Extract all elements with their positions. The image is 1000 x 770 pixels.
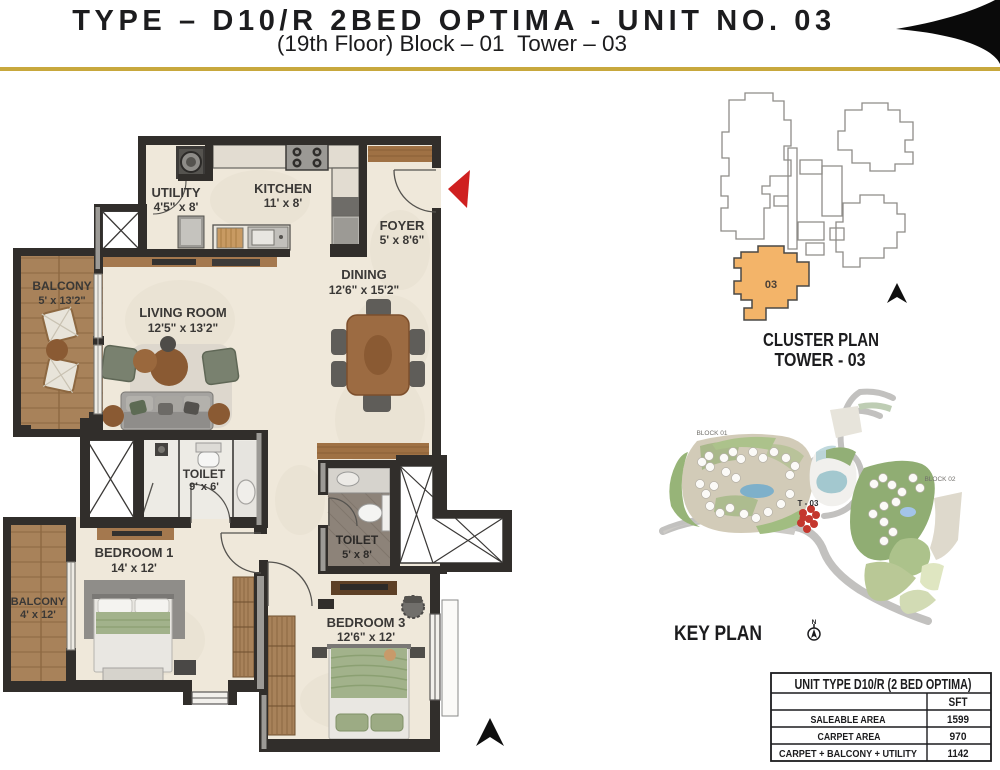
- svg-text:SALEABLE AREA: SALEABLE AREA: [811, 714, 886, 726]
- svg-text:1142: 1142: [948, 748, 969, 760]
- svg-text:5' x 8'6": 5' x 8'6": [380, 233, 425, 247]
- svg-text:CLUSTER PLAN: CLUSTER PLAN: [763, 330, 879, 350]
- svg-text:12'5" x 13'2": 12'5" x 13'2": [148, 321, 218, 335]
- svg-text:BEDROOM 3: BEDROOM 3: [327, 615, 406, 630]
- svg-text:SFT: SFT: [949, 697, 968, 709]
- svg-text:TOILET: TOILET: [183, 467, 226, 481]
- svg-text:9' x 6': 9' x 6': [189, 481, 219, 493]
- svg-text:970: 970: [950, 731, 967, 743]
- svg-text:TOWER - 03: TOWER - 03: [775, 350, 866, 370]
- svg-text:UTILITY: UTILITY: [151, 185, 200, 200]
- svg-text:CARPET AREA: CARPET AREA: [818, 731, 881, 743]
- svg-text:BLOCK 02: BLOCK 02: [924, 476, 955, 483]
- svg-text:KEY PLAN: KEY PLAN: [674, 622, 762, 645]
- svg-text:UNIT TYPE D10/R (2 BED OPTIMA): UNIT TYPE D10/R (2 BED OPTIMA): [795, 676, 972, 693]
- svg-text:KITCHEN: KITCHEN: [254, 181, 312, 196]
- svg-text:BALCONY: BALCONY: [11, 596, 66, 608]
- svg-text:TOILET: TOILET: [336, 533, 379, 547]
- svg-text:5' x 13'2": 5' x 13'2": [38, 295, 85, 307]
- svg-text:12'6" x 12': 12'6" x 12': [337, 630, 395, 644]
- svg-text:(19th Floor) Block – 01 Tower: (19th Floor) Block – 01 Tower – 03: [277, 31, 627, 56]
- svg-text:4'5" x 8': 4'5" x 8': [154, 200, 199, 214]
- svg-text:12'6" x 15'2": 12'6" x 15'2": [329, 283, 399, 297]
- svg-text:LIVING ROOM: LIVING ROOM: [139, 305, 226, 320]
- svg-text:T - 03: T - 03: [798, 499, 819, 508]
- svg-text:11' x 8': 11' x 8': [264, 196, 303, 210]
- svg-text:14' x 12': 14' x 12': [111, 561, 157, 575]
- svg-text:N: N: [812, 619, 817, 626]
- svg-text:BALCONY: BALCONY: [32, 279, 91, 293]
- svg-text:4' x 12': 4' x 12': [20, 609, 56, 621]
- svg-text:FOYER: FOYER: [380, 218, 425, 233]
- svg-text:CARPET + BALCONY + UTILITY: CARPET + BALCONY + UTILITY: [779, 748, 917, 760]
- svg-text:BEDROOM 1: BEDROOM 1: [95, 545, 174, 560]
- svg-text:5' x 8': 5' x 8': [342, 549, 372, 561]
- svg-text:03: 03: [765, 279, 777, 291]
- svg-text:DINING: DINING: [341, 267, 387, 282]
- svg-text:BLOCK 01: BLOCK 01: [696, 430, 727, 437]
- svg-text:1599: 1599: [947, 714, 969, 726]
